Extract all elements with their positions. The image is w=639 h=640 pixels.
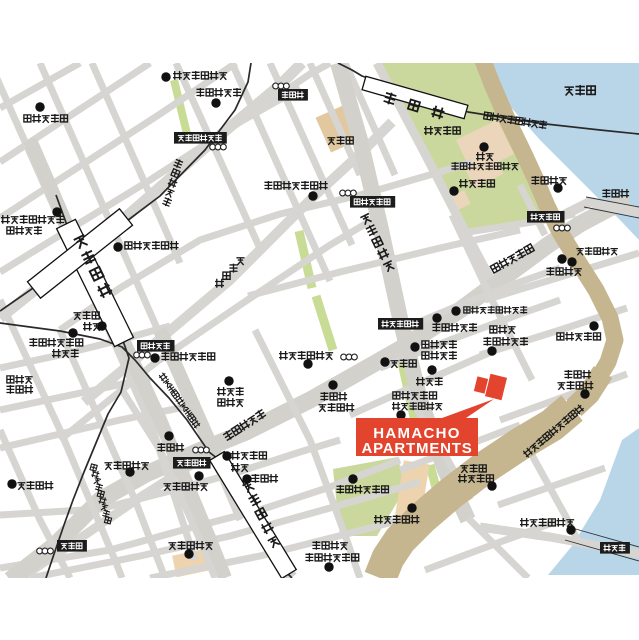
svg-text:APARTMENTS: APARTMENTS [361,440,472,457]
